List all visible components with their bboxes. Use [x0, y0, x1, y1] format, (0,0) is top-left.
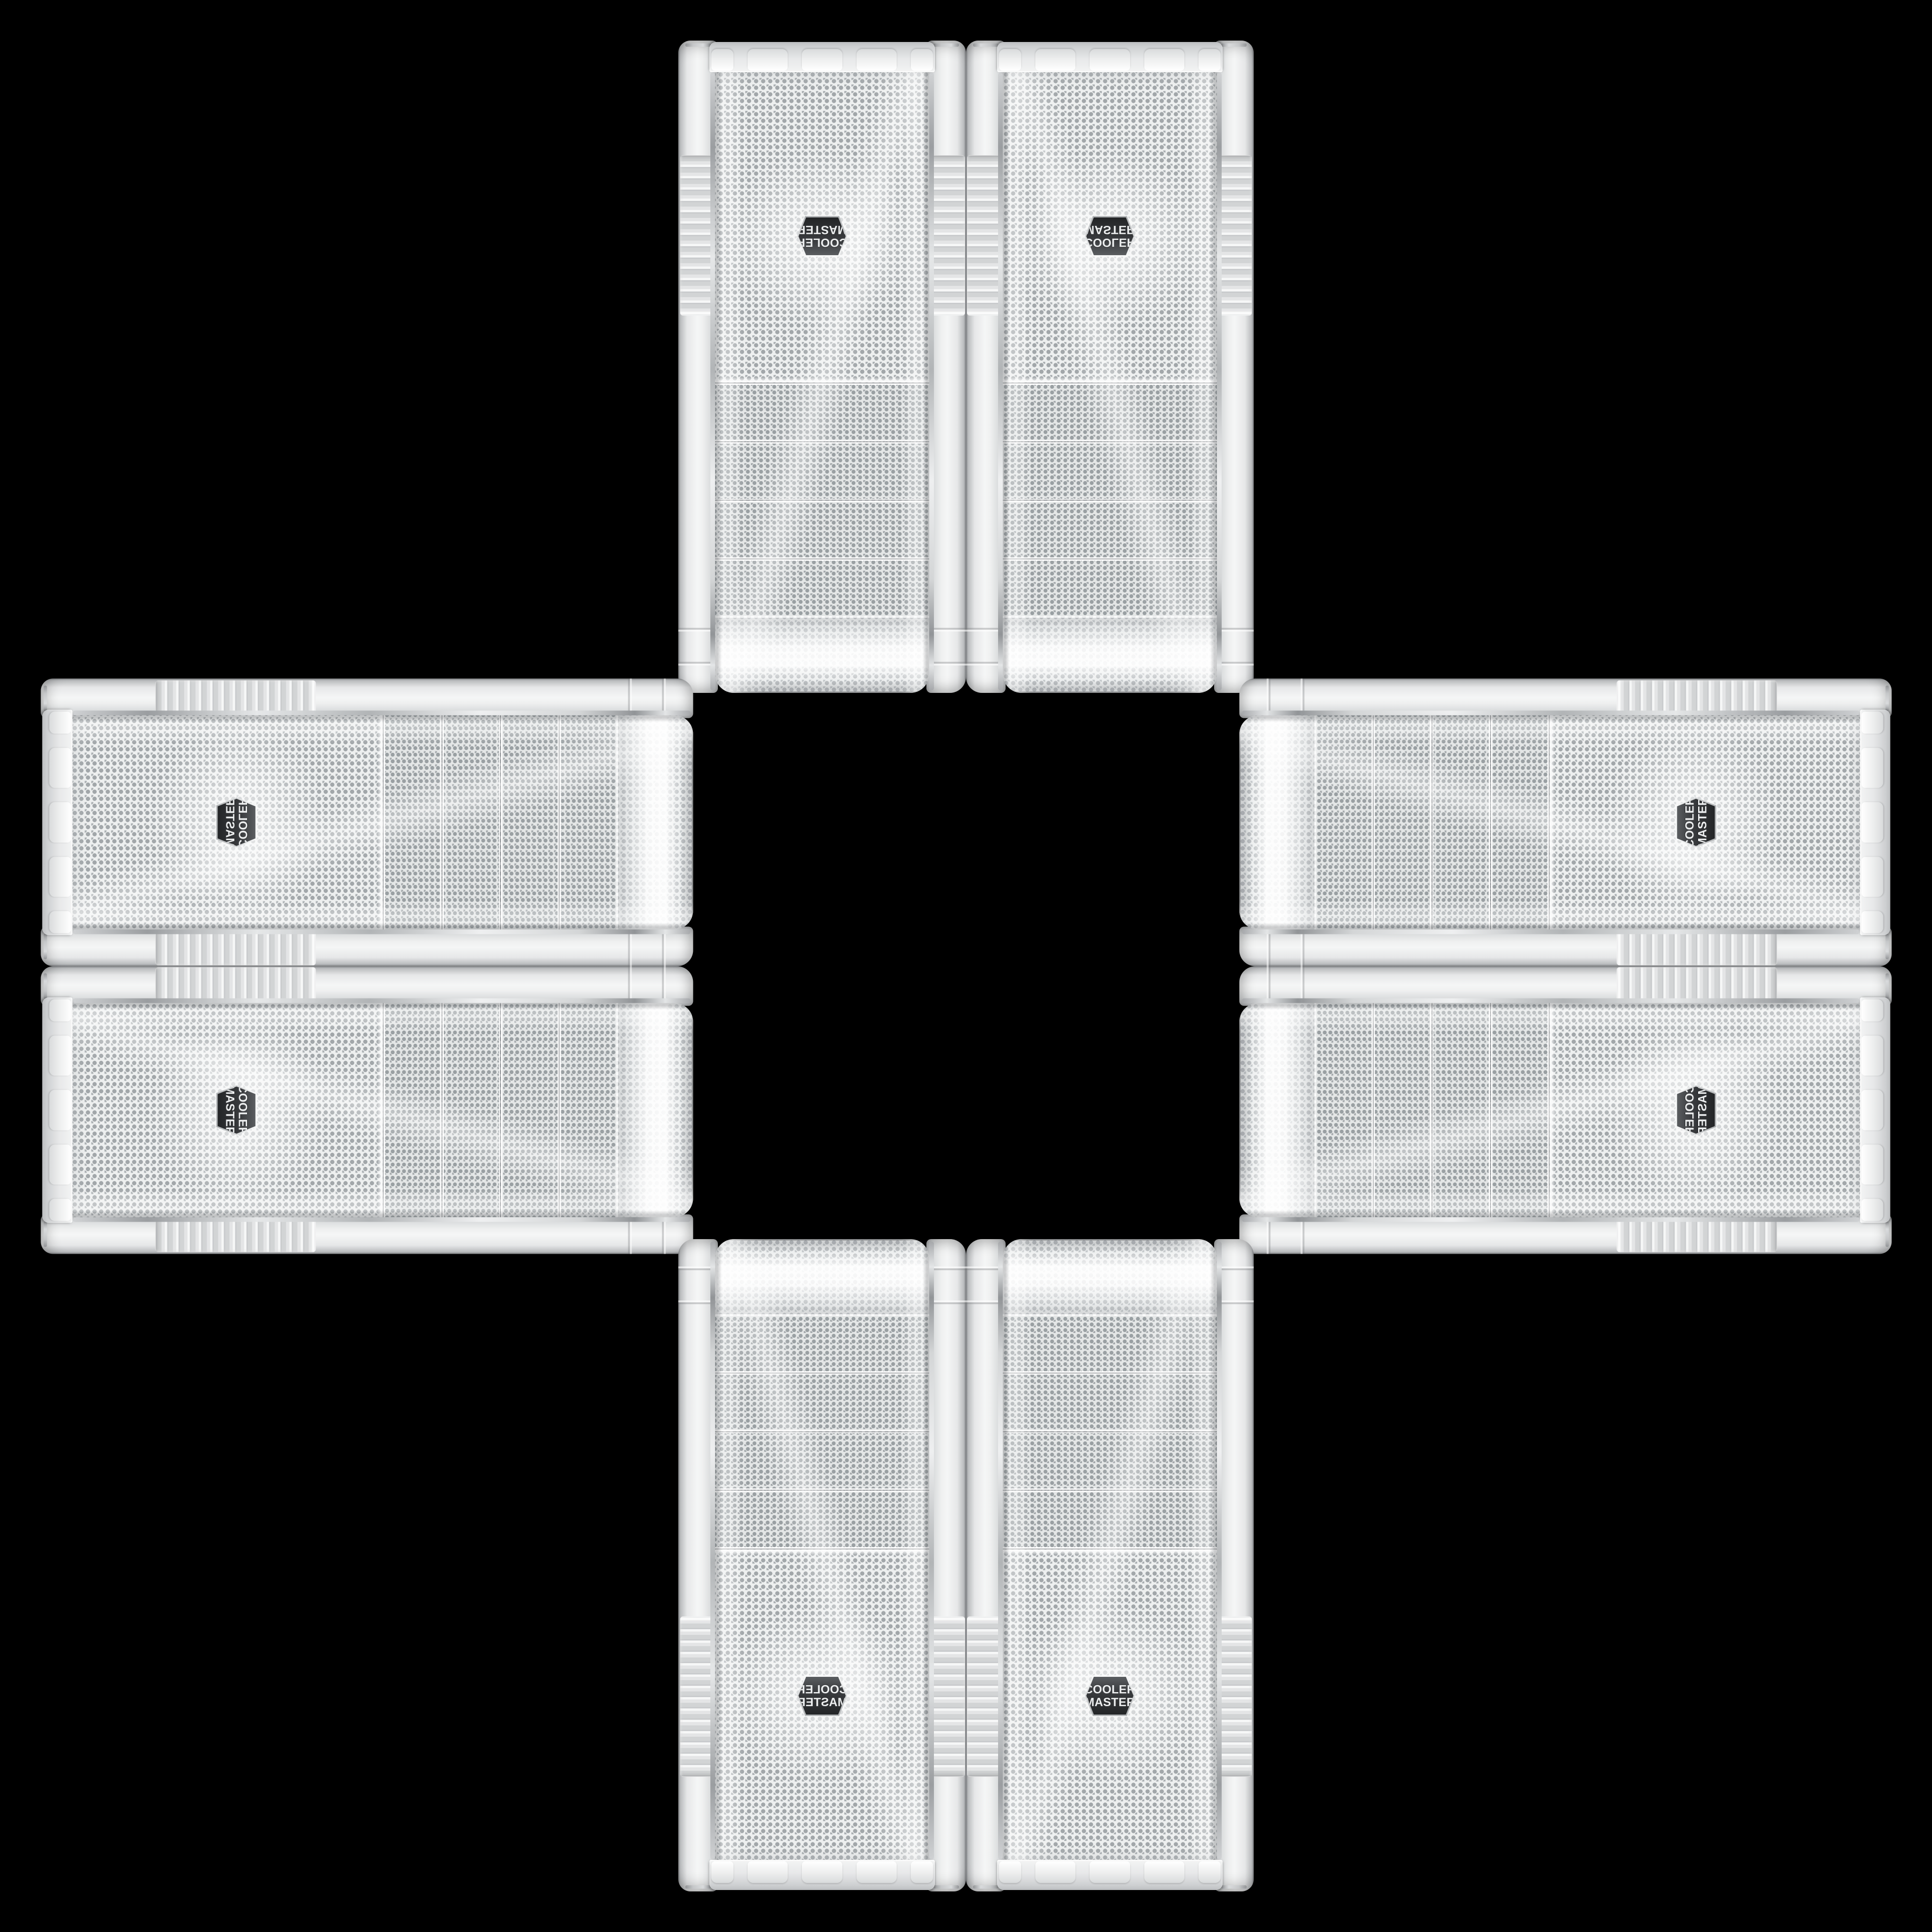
cap-bump: [748, 1861, 788, 1883]
mesh-curved-top-band: [1003, 1239, 1217, 1316]
cap-segment-bumps: [49, 711, 71, 933]
cap-segment-bumps: [49, 999, 71, 1221]
bottom-cap: [709, 42, 935, 72]
front-mesh-panel: COOLER MASTER: [71, 1003, 693, 1217]
badge-line2: MASTER: [1084, 1696, 1135, 1708]
cap-bump: [857, 1861, 897, 1883]
badge-line1: COOLER: [797, 1683, 848, 1696]
chrome-trim-left: [1242, 998, 1859, 1003]
cap-segment-bumps: [1861, 999, 1883, 1221]
cap-bump: [1861, 1144, 1883, 1184]
cap-bump: [802, 1861, 842, 1883]
badge-line2: MASTER: [224, 797, 236, 847]
rail-chrome-tip: [43, 685, 47, 711]
cap-bump: [748, 49, 788, 71]
rail-chrome-tip: [973, 1885, 999, 1889]
cooler-master-badge: COOLER MASTER: [1085, 1675, 1135, 1716]
cap-bump: [1090, 49, 1130, 71]
chrome-trim-right: [710, 73, 715, 690]
badge-hexagon: COOLER MASTER: [799, 1677, 846, 1715]
cap-bump: [1861, 911, 1883, 933]
cap-bump: [999, 49, 1021, 71]
cap-segment-bumps: [1861, 711, 1883, 933]
badge-line2: MASTER: [1696, 1084, 1708, 1135]
cooler-master-badge: COOLER MASTER: [797, 1675, 847, 1716]
front-mesh-panel: COOLER MASTER: [1003, 71, 1217, 693]
pc-case-left-bottom: COOLER MASTER: [40, 966, 694, 1254]
chrome-trim-left: [929, 1242, 934, 1859]
badge-hexagon: COOLER MASTER: [1677, 799, 1715, 846]
badge-line2: MASTER: [1696, 797, 1708, 847]
drive-bay-covers: [1003, 1316, 1217, 1550]
cap-bump: [49, 802, 71, 842]
rail-chrome-tip: [933, 43, 959, 47]
front-mesh-panel: COOLER MASTER: [1239, 715, 1861, 929]
badge-hexagon: COOLER MASTER: [217, 1086, 255, 1133]
rail-chrome-tip: [43, 1221, 47, 1247]
rail-chrome-tip: [933, 1885, 959, 1889]
cap-bump: [857, 49, 897, 71]
chrome-trim-left: [929, 73, 934, 690]
cap-bump: [911, 49, 933, 71]
chrome-trim-right: [710, 1242, 715, 1859]
mesh-curved-top-band: [1003, 616, 1217, 693]
badge-line1: COOLER: [1683, 1084, 1696, 1136]
bottom-cap: [1860, 709, 1890, 935]
badge-line2: MASTER: [797, 1696, 847, 1708]
rail-chrome-tip: [43, 933, 47, 959]
cap-segment-bumps: [999, 1861, 1221, 1883]
cap-bump: [49, 1090, 71, 1130]
pc-case-right-bottom: COOLER MASTER: [1238, 966, 1892, 1254]
cooler-master-badge: COOLER MASTER: [216, 1085, 257, 1135]
chrome-trim-right: [1217, 73, 1222, 690]
bottom-cap: [42, 709, 72, 935]
chrome-trim-right: [1242, 710, 1859, 715]
bottom-cap: [709, 1860, 935, 1890]
mesh-curved-top-band: [715, 1239, 929, 1316]
mesh-curved-top-band: [616, 715, 693, 929]
cooler-master-badge: COOLER MASTER: [1675, 1085, 1716, 1135]
cap-bump: [49, 1144, 71, 1184]
cap-bump: [49, 711, 71, 733]
front-mesh-panel: COOLER MASTER: [715, 1239, 929, 1861]
badge-line2: MASTER: [1084, 224, 1135, 236]
rail-chrome-tip: [1885, 1221, 1889, 1247]
rail-chrome-tip: [1885, 685, 1889, 711]
cooler-master-badge: COOLER MASTER: [216, 797, 257, 847]
chrome-trim-left: [73, 998, 690, 1003]
front-mesh-panel: COOLER MASTER: [1239, 1003, 1861, 1217]
chrome-trim-left: [998, 73, 1003, 690]
badge-hexagon: COOLER MASTER: [1677, 1086, 1715, 1133]
cap-bump: [1861, 802, 1883, 842]
cap-bump: [1035, 49, 1075, 71]
cap-segment-bumps: [711, 1861, 933, 1883]
cap-segment-bumps: [711, 49, 933, 71]
cap-bump: [1090, 1861, 1130, 1883]
cap-bump: [49, 748, 71, 788]
badge-line2: MASTER: [797, 224, 847, 236]
pc-case-top-right: COOLER MASTER: [966, 40, 1254, 694]
drive-bay-covers: [1316, 1003, 1550, 1217]
cap-bump: [711, 49, 733, 71]
badge-line1: COOLER: [1084, 1683, 1136, 1696]
badge-line1: COOLER: [1084, 237, 1136, 249]
badge-line2: MASTER: [224, 1084, 236, 1135]
cap-bump: [49, 911, 71, 933]
pc-case-top-left: COOLER MASTER: [678, 40, 966, 694]
bottom-cap: [997, 42, 1223, 72]
pc-case-left-top: COOLER MASTER: [40, 678, 694, 966]
badge-hexagon: COOLER MASTER: [1086, 1677, 1133, 1715]
rail-chrome-tip: [43, 973, 47, 999]
drive-bay-covers: [1003, 382, 1217, 616]
cap-bump: [49, 857, 71, 897]
chrome-trim-right: [73, 1217, 690, 1222]
bottom-cap: [42, 997, 72, 1223]
badge-line1: COOLER: [797, 237, 848, 249]
cap-bump: [999, 1861, 1021, 1883]
cap-bump: [711, 1861, 733, 1883]
cap-bump: [1861, 748, 1883, 788]
mesh-curved-top-band: [616, 1003, 693, 1217]
cooler-master-badge: COOLER MASTER: [1085, 216, 1135, 257]
chrome-trim-right: [1217, 1242, 1222, 1859]
cap-bump: [1144, 49, 1184, 71]
cooler-master-badge: COOLER MASTER: [797, 216, 847, 257]
cap-bump: [1144, 1861, 1184, 1883]
front-mesh-panel: COOLER MASTER: [71, 715, 693, 929]
badge-hexagon: COOLER MASTER: [217, 799, 255, 846]
badge-line1: COOLER: [1683, 797, 1696, 848]
cap-bump: [1861, 999, 1883, 1021]
black-backdrop: COOLER MASTER: [0, 0, 1932, 1932]
cap-bump: [49, 999, 71, 1021]
pc-case-bottom-right: COOLER MASTER: [966, 1238, 1254, 1892]
drive-bay-covers: [382, 715, 616, 929]
badge-hexagon: COOLER MASTER: [1086, 217, 1133, 255]
cap-bump: [49, 1199, 71, 1221]
cooler-master-badge: COOLER MASTER: [1675, 797, 1716, 847]
mesh-curved-top-band: [1239, 1003, 1316, 1217]
bottom-cap: [1860, 997, 1890, 1223]
pc-case-right-top: COOLER MASTER: [1238, 678, 1892, 966]
cap-segment-bumps: [999, 49, 1221, 71]
cap-bump: [1199, 49, 1221, 71]
rail-chrome-tip: [685, 1885, 711, 1889]
chrome-trim-left: [73, 929, 690, 934]
mesh-curved-top-band: [715, 616, 929, 693]
rail-chrome-tip: [1885, 973, 1889, 999]
cap-bump: [1035, 1861, 1075, 1883]
front-mesh-panel: COOLER MASTER: [715, 71, 929, 693]
cap-bump: [1861, 1199, 1883, 1221]
badge-line1: COOLER: [237, 797, 249, 848]
cap-bump: [1861, 1035, 1883, 1075]
chrome-trim-left: [1242, 929, 1859, 934]
chrome-trim-right: [1242, 1217, 1859, 1222]
badge-line1: COOLER: [237, 1084, 249, 1136]
cap-bump: [49, 1035, 71, 1075]
drive-bay-covers: [382, 1003, 616, 1217]
chrome-trim-left: [998, 1242, 1003, 1859]
bottom-cap: [997, 1860, 1223, 1890]
rail-chrome-tip: [1221, 43, 1247, 47]
drive-bay-covers: [715, 1316, 929, 1550]
badge-hexagon: COOLER MASTER: [799, 217, 846, 255]
front-mesh-panel: COOLER MASTER: [1003, 1239, 1217, 1861]
mesh-curved-top-band: [1239, 715, 1316, 929]
drive-bay-covers: [715, 382, 929, 616]
rail-chrome-tip: [1885, 933, 1889, 959]
rail-chrome-tip: [973, 43, 999, 47]
cap-bump: [1199, 1861, 1221, 1883]
rail-chrome-tip: [685, 43, 711, 47]
cap-bump: [802, 49, 842, 71]
cap-bump: [1861, 857, 1883, 897]
cap-bump: [1861, 711, 1883, 733]
drive-bay-covers: [1316, 715, 1550, 929]
rail-chrome-tip: [1221, 1885, 1247, 1889]
cap-bump: [1861, 1090, 1883, 1130]
chrome-trim-right: [73, 710, 690, 715]
cap-bump: [911, 1861, 933, 1883]
pc-case-bottom-left: COOLER MASTER: [678, 1238, 966, 1892]
